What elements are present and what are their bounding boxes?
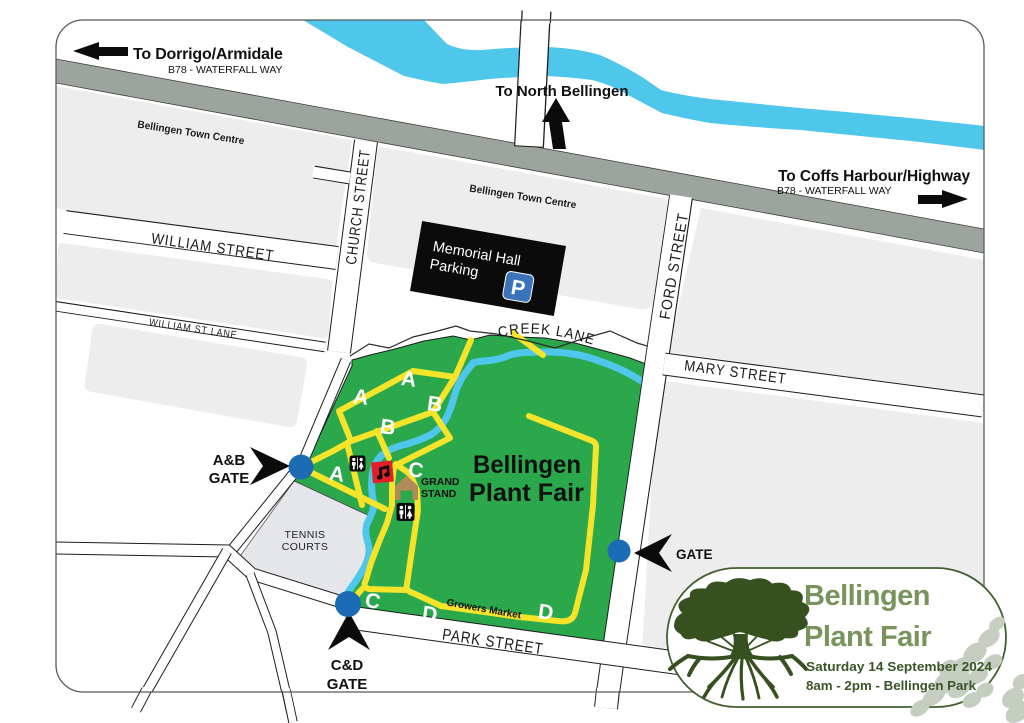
svg-text:Bellingen: Bellingen [804,580,930,612]
svg-text:To Dorrigo/Armidale: To Dorrigo/Armidale [133,46,283,63]
svg-text:GATE: GATE [327,676,368,693]
svg-text:COURTS: COURTS [282,541,329,553]
svg-text:TENNIS: TENNIS [285,529,326,541]
svg-text:D: D [537,600,555,625]
svg-text:D: D [421,602,439,627]
svg-text:GATE: GATE [676,547,713,562]
svg-text:C&D: C&D [331,657,364,674]
svg-text:Saturday 14 September 2024: Saturday 14 September 2024 [806,659,993,674]
svg-text:GRAND: GRAND [421,476,460,488]
svg-text:B: B [379,415,397,440]
svg-text:STAND: STAND [421,488,457,500]
svg-text:B78 - WATERFALL WAY: B78 - WATERFALL WAY [168,64,283,76]
svg-text:A: A [328,462,346,487]
svg-text:A: A [400,367,418,392]
svg-text:Plant Fair: Plant Fair [469,479,584,507]
svg-text:B: B [426,392,444,417]
svg-text:Plant Fair: Plant Fair [804,621,931,653]
svg-text:To Coffs Harbour/Highway: To Coffs Harbour/Highway [778,168,970,185]
svg-text:B78 - WATERFALL WAY: B78 - WATERFALL WAY [777,185,892,197]
svg-text:GATE: GATE [209,470,250,487]
svg-text:A&B: A&B [213,452,246,469]
svg-text:Bellingen: Bellingen [473,451,581,479]
svg-text:8am - 2pm - Bellingen Park: 8am - 2pm - Bellingen Park [806,678,977,693]
svg-text:To North Bellingen: To North Bellingen [495,83,628,100]
svg-text:A: A [352,385,370,410]
